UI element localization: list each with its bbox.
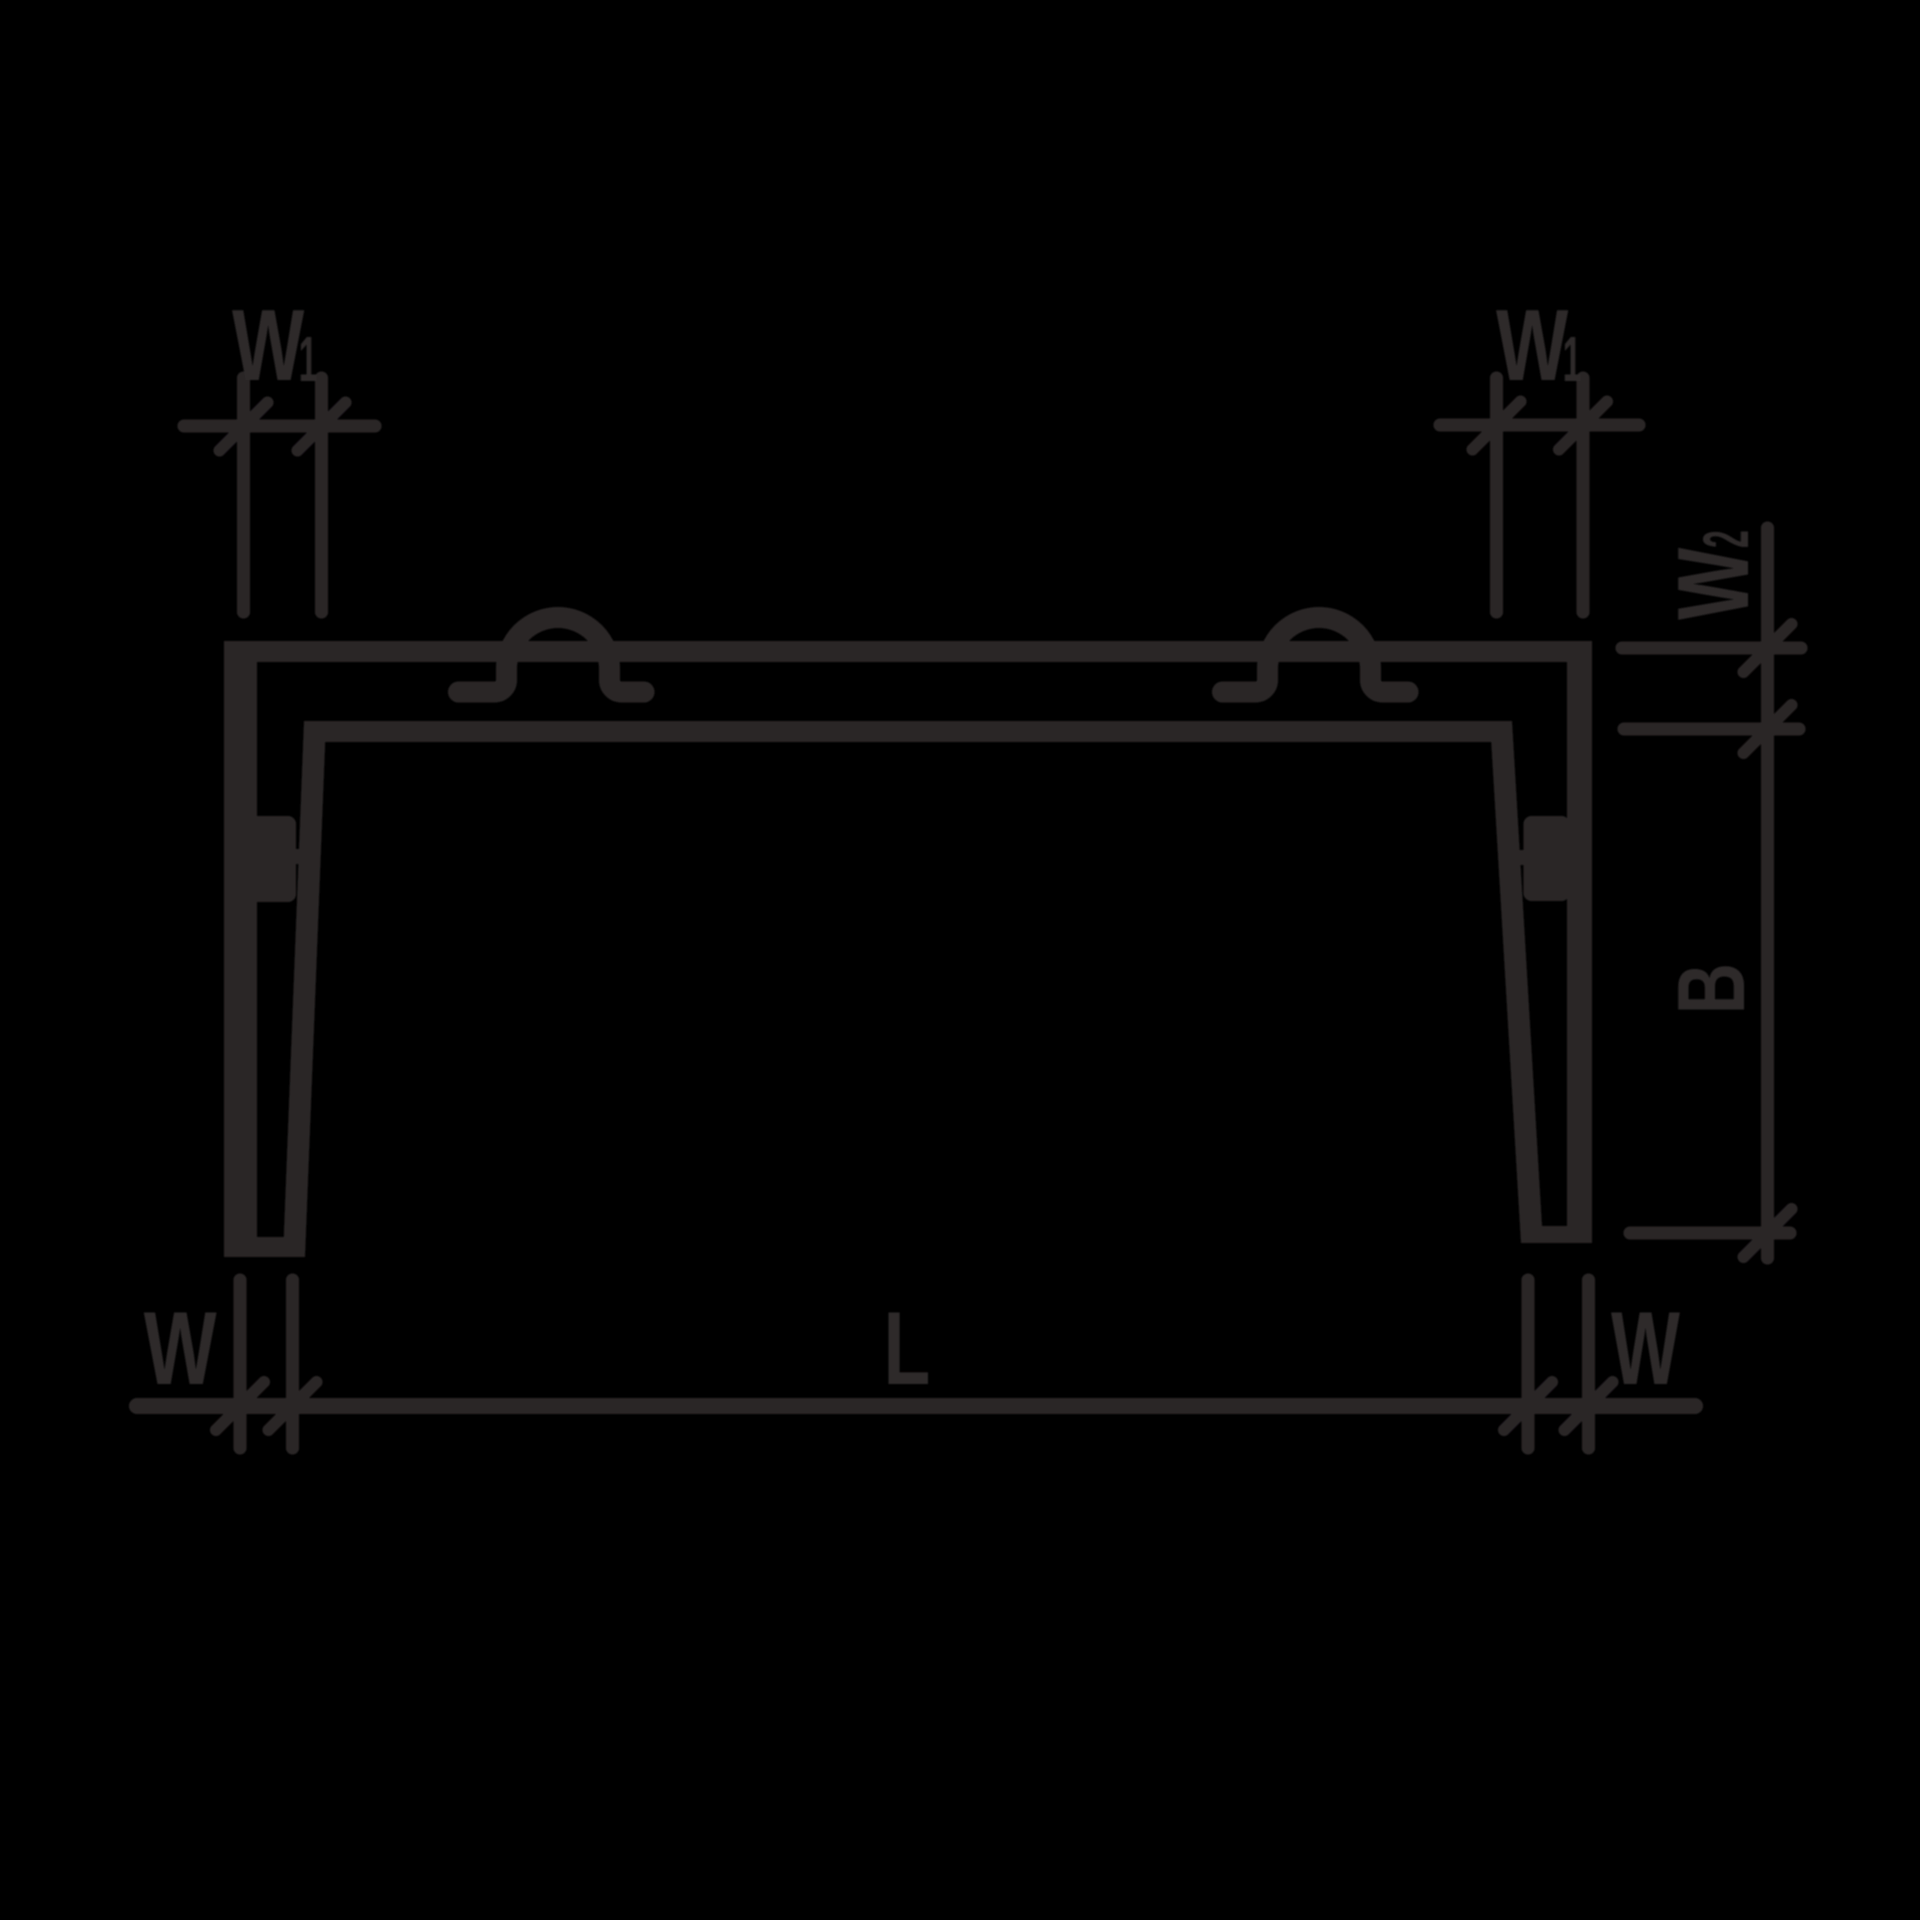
svg-text:1: 1 (1563, 324, 1582, 395)
svg-text:W: W (144, 1291, 217, 1407)
svg-text:B: B (1658, 963, 1765, 1014)
svg-text:1: 1 (299, 324, 318, 395)
svg-text:W: W (1658, 548, 1771, 620)
svg-text:L: L (883, 1291, 930, 1407)
svg-text:W: W (1496, 290, 1568, 403)
svg-text:2: 2 (1690, 530, 1762, 548)
svg-text:W: W (1611, 1291, 1680, 1407)
svg-text:W: W (232, 290, 304, 403)
